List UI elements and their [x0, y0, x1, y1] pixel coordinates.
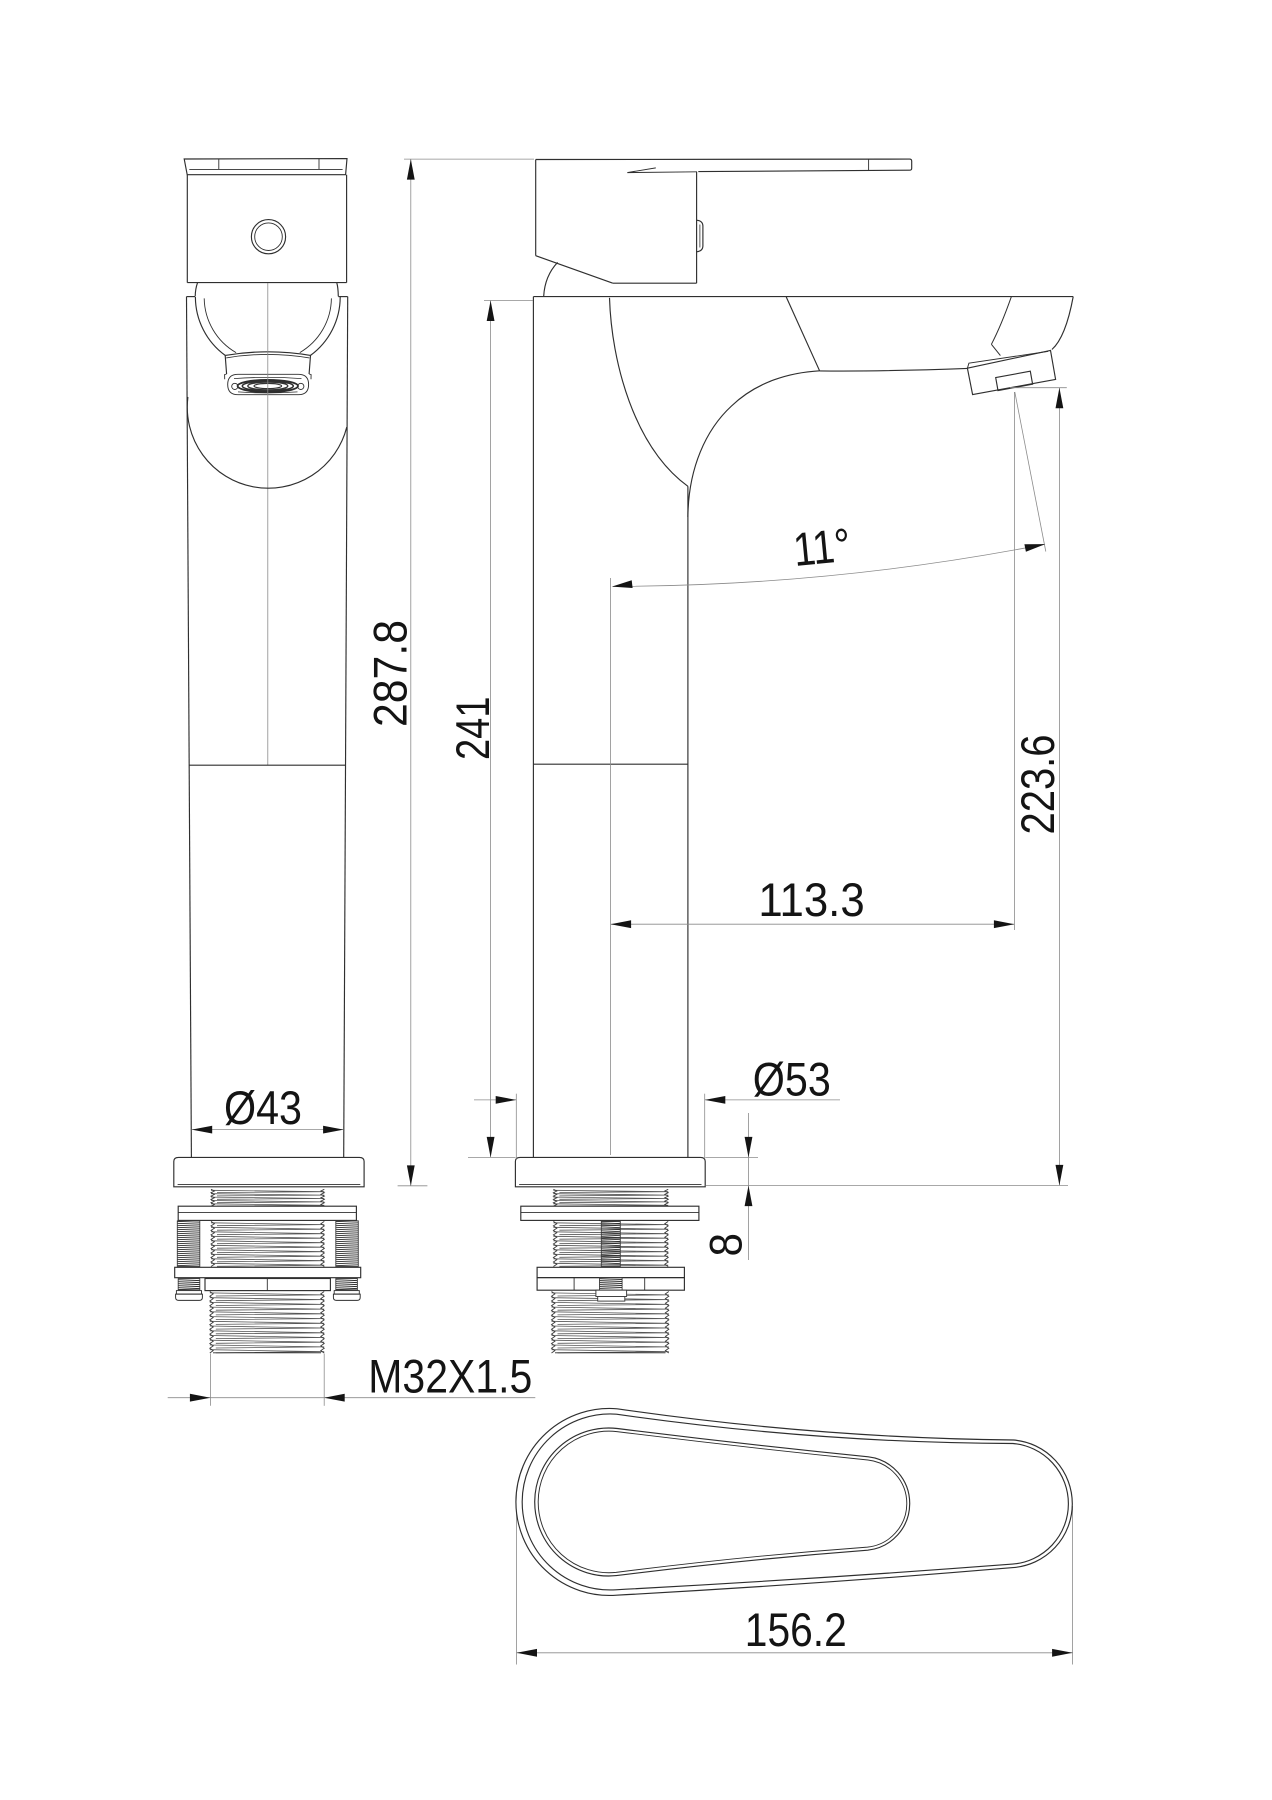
svg-text:223.6: 223.6: [1011, 735, 1064, 835]
svg-text:113.3: 113.3: [758, 873, 864, 926]
svg-text:287.8: 287.8: [364, 620, 417, 727]
svg-text:11°: 11°: [791, 518, 853, 576]
svg-text:8: 8: [701, 1233, 752, 1257]
svg-text:241: 241: [446, 697, 499, 761]
svg-text:M32X1.5: M32X1.5: [368, 1350, 532, 1403]
svg-text:Ø53: Ø53: [753, 1052, 831, 1105]
svg-text:Ø43: Ø43: [224, 1081, 302, 1134]
svg-text:156.2: 156.2: [745, 1603, 847, 1656]
